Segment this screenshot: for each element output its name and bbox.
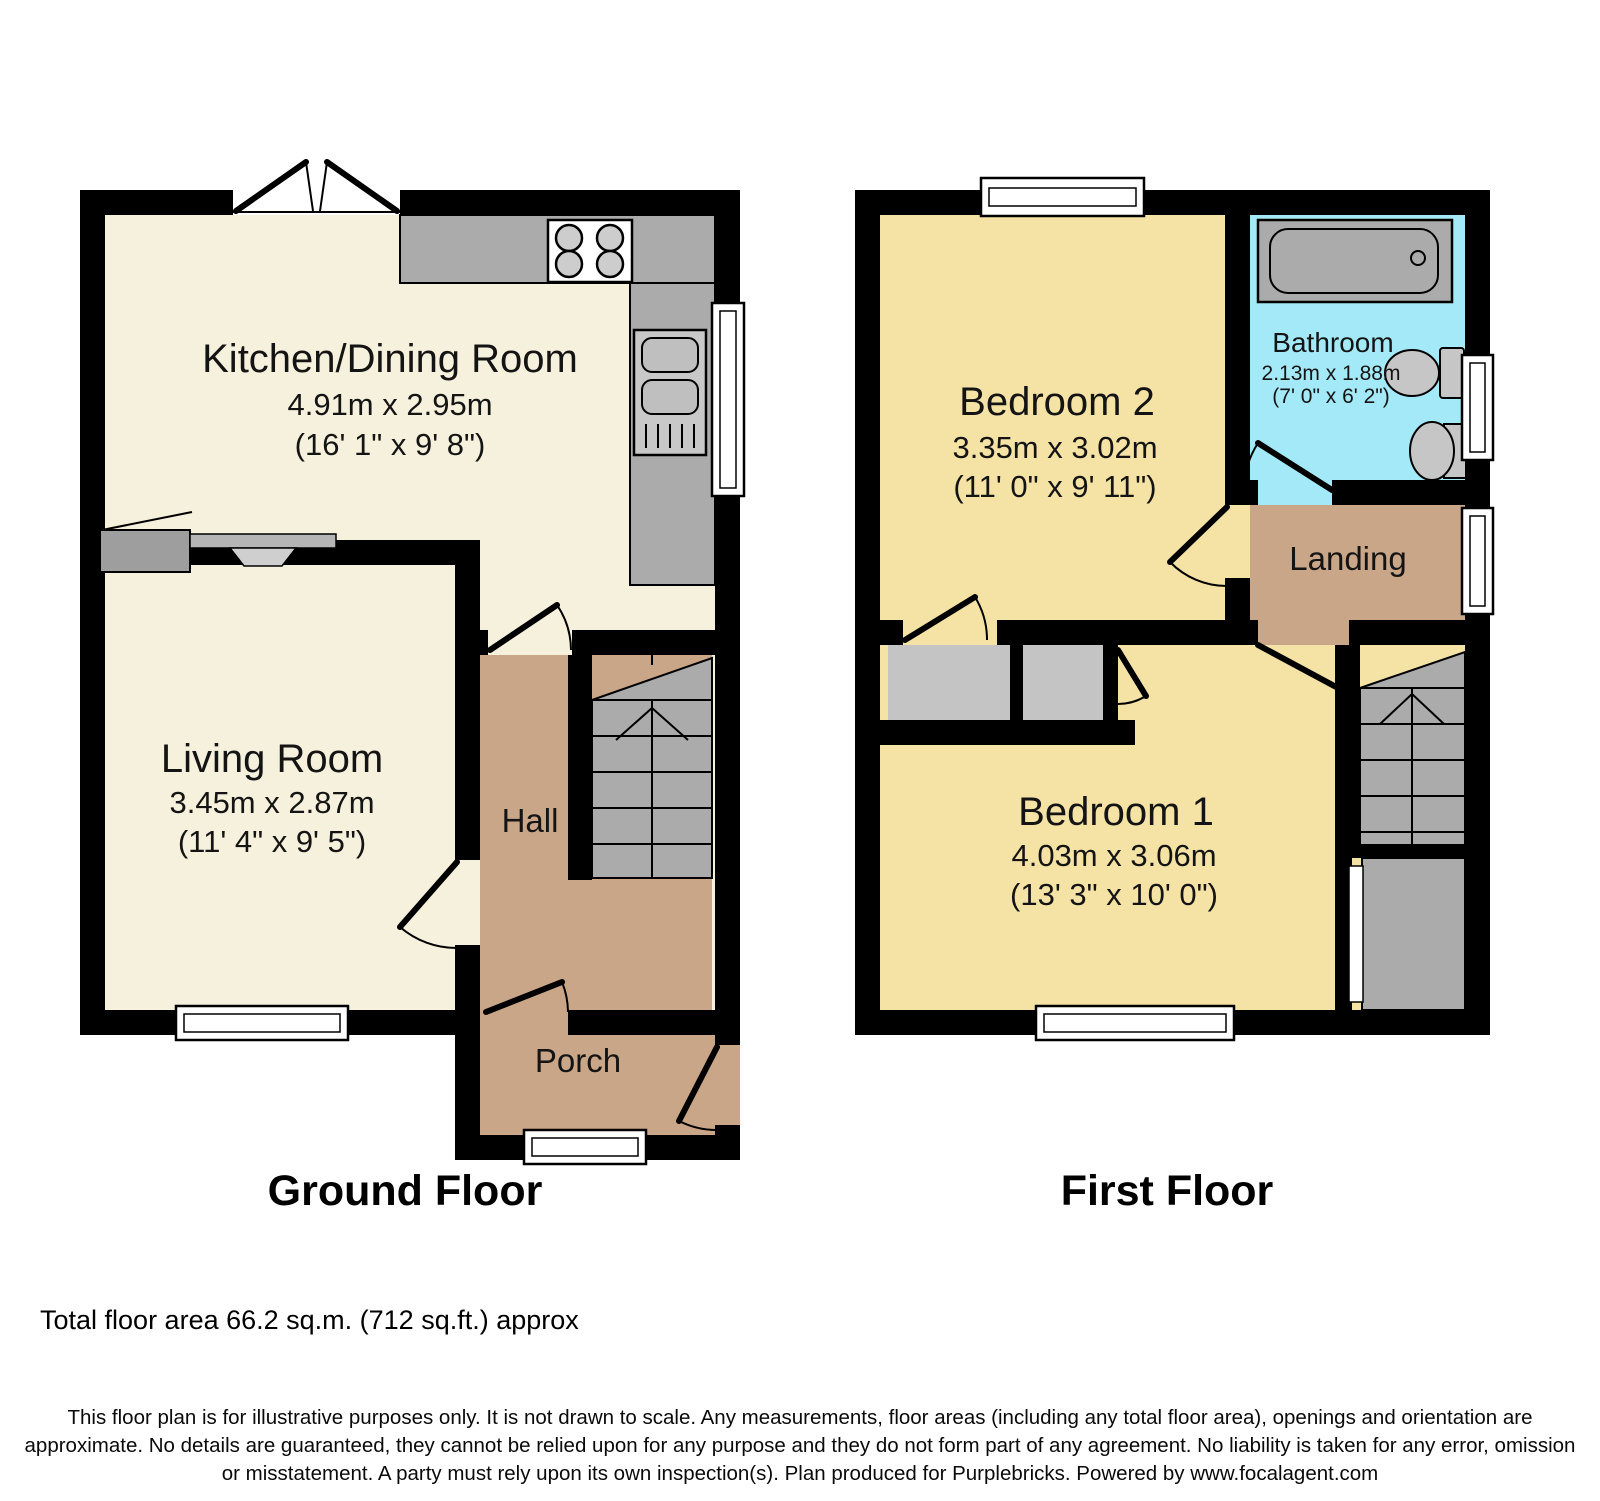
kitchen-label: Kitchen/Dining Room (202, 337, 578, 381)
wall-segment (1349, 620, 1465, 645)
wall-segment (855, 190, 1490, 215)
floorplan-page: Kitchen/Dining Room 4.91m x 2.95m (16' 1… (0, 0, 1600, 1501)
window (989, 188, 1136, 206)
wall-segment (568, 655, 592, 880)
wall-segment (80, 190, 105, 1035)
wash-basin-icon (1410, 422, 1466, 480)
wall-segment (855, 190, 880, 1035)
ground-floor-caption: Ground Floor (268, 1167, 543, 1215)
bedroom1-dims-ft: (13' 3" x 10' 0") (1010, 877, 1218, 912)
wall-segment (1225, 578, 1250, 620)
hall-label: Hall (502, 802, 559, 839)
wall-segment (1335, 645, 1360, 845)
window (184, 1014, 340, 1032)
wall-segment (455, 945, 480, 1160)
french-doors-icon (236, 162, 397, 211)
first-floor-caption: First Floor (1061, 1167, 1274, 1215)
sink-icon (634, 330, 706, 455)
bedroom2-dims-ft: (11' 0" x 9' 11") (953, 469, 1156, 504)
cupboard (1349, 858, 1465, 1010)
wall-segment (1332, 480, 1465, 505)
wall-segment (1225, 480, 1258, 505)
bathroom-dims-m: 2.13m x 1.88m (1262, 362, 1401, 385)
window (1470, 516, 1485, 606)
wall-segment (1010, 645, 1023, 720)
first-floor-plan: Bedroom 2 3.35m x 3.02m (11' 0" x 9' 11"… (855, 178, 1493, 1215)
wall-segment (455, 630, 488, 655)
wall-segment (997, 620, 1258, 645)
bathroom-dims-ft: (7' 0" x 6' 2") (1272, 385, 1389, 408)
wardrobe (888, 645, 1010, 720)
bedroom2-dims-m: 3.35m x 3.02m (952, 430, 1157, 465)
disclaimer-text: This floor plan is for illustrative purp… (0, 1404, 1600, 1488)
wall-segment (568, 1010, 740, 1035)
porch-label: Porch (535, 1042, 621, 1079)
living-label: Living Room (161, 737, 383, 781)
cupboard-door (1349, 866, 1363, 1002)
wall-segment (857, 720, 1135, 745)
living-dims-ft: (11' 4" x 9' 5") (178, 824, 366, 859)
bedroom1-threshold (1258, 620, 1349, 645)
kitchen-dims-ft: (16' 1" x 9' 8") (295, 427, 486, 462)
wardrobe (1023, 645, 1103, 720)
window (532, 1138, 638, 1156)
bathtub-icon (1258, 220, 1452, 302)
window (720, 311, 736, 488)
bedroom2-label: Bedroom 2 (959, 380, 1155, 424)
ground-floor-plan: Kitchen/Dining Room 4.91m x 2.95m (16' 1… (80, 162, 744, 1215)
floorplan-drawing: Kitchen/Dining Room 4.91m x 2.95m (16' 1… (0, 0, 1600, 1260)
wall-segment (572, 630, 715, 655)
bathroom-label: Bathroom (1272, 327, 1393, 358)
landing-label: Landing (1289, 540, 1406, 577)
bedroom1-label: Bedroom 1 (1018, 790, 1214, 834)
wall-segment (1335, 845, 1465, 858)
window (1470, 363, 1485, 452)
window (1044, 1014, 1226, 1032)
wall-segment (1225, 215, 1250, 505)
hob-icon (548, 220, 632, 282)
kitchen-dims-m: 4.91m x 2.95m (287, 387, 492, 422)
wall-segment (855, 620, 903, 645)
bedroom1-dims-m: 4.03m x 3.06m (1011, 838, 1216, 873)
wall-segment (400, 190, 740, 215)
wall-segment (1103, 645, 1118, 720)
living-dims-m: 3.45m x 2.87m (169, 785, 374, 820)
wall-segment (455, 540, 480, 860)
total-floor-area: Total floor area 66.2 sq.m. (712 sq.ft.)… (40, 1305, 579, 1336)
